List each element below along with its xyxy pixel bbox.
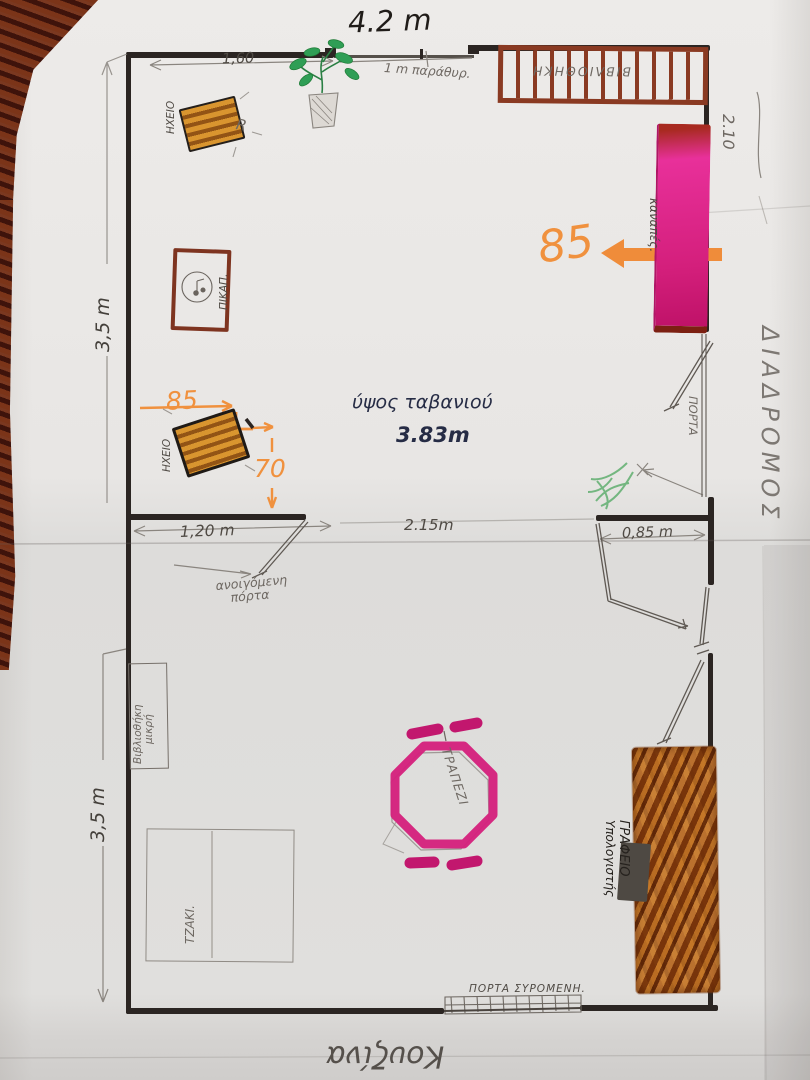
dim-right-opening: 0,85 m xyxy=(622,525,674,542)
wall-divider-left xyxy=(126,514,306,520)
wall-right-mid xyxy=(708,497,714,585)
sofa-label: καναπές. xyxy=(647,198,660,276)
fireplace xyxy=(145,828,294,962)
pencil-mark xyxy=(246,419,253,428)
dim-speaker-width: 85 xyxy=(165,387,198,415)
speaker-left-label: ΗΧΕΙΟ xyxy=(162,428,173,472)
window-jamb-left xyxy=(325,48,336,57)
kitchen-label: Κουζίνα xyxy=(300,1040,470,1072)
door-mid-label-line2: πόρτα xyxy=(230,586,289,604)
window-icon xyxy=(334,55,474,58)
bookshelf-small-label: Βιβλιοθήκη μικρή xyxy=(133,668,155,764)
dim-wall-left-segment: 1,60 xyxy=(222,51,255,67)
dim-sofa-depth: 85 xyxy=(535,218,597,272)
table-label: ΤΡΑΠΕΖΙ xyxy=(440,746,480,836)
sliding-door-label: ΠΟΡΤΑ ΣΥΡΟΜΕΝΗ. xyxy=(469,984,586,995)
dim-room-height-upper: 3,5 m xyxy=(94,268,114,352)
dim-middle-opening: 2.15m xyxy=(404,517,454,533)
wall-bottom-left xyxy=(126,1008,444,1014)
desk-label-line2: Υπολογιστής xyxy=(604,820,617,932)
ceiling-height-label: ύψος ταβανιού xyxy=(352,393,493,413)
corridor-label: ΔΙΑΔΡΟΜΟΣ xyxy=(757,326,782,556)
table-octagon xyxy=(383,723,493,865)
sofa xyxy=(653,124,711,334)
window-jamb-right xyxy=(468,45,479,54)
carpet-edge-top-left xyxy=(0,0,98,205)
sliding-door-track xyxy=(444,1008,581,1011)
dim-room-height-lower: 3,5 m xyxy=(89,766,109,842)
desk-label-line1: ΓΡΑΦΕΙΟ xyxy=(616,820,630,932)
bookshelf-top-label: ΒΙΒΛΙΟΘΗΚΗ xyxy=(531,64,631,78)
dim-top-width: 4.2 m xyxy=(347,5,432,38)
dim-right-wall-depth: 2.10 xyxy=(719,114,736,172)
dim-speaker-offset: 70 xyxy=(254,456,286,482)
speaker-top-label: ΗΧΕΙΟ xyxy=(166,94,177,134)
wall-left xyxy=(126,52,131,1014)
floor-plan-photo: ΒΙΒΛΙΟΘΗΚΗ 4.2 m 1,60 1 m παράθυρ. 2.10 … xyxy=(0,0,810,1080)
wall-bottom-right xyxy=(580,1005,718,1011)
dim-window: 1 m παράθυρ. xyxy=(384,61,472,80)
bookshelf-top: ΒΙΒΛΙΟΘΗΚΗ xyxy=(498,45,709,105)
door-mid-label: ανοιγόμενη πόρτα xyxy=(215,573,289,605)
fireplace-label: ΤΖΑΚΙ. xyxy=(184,866,197,944)
sliding-door-icon xyxy=(445,995,581,1014)
desk-label: ΓΡΑΦΕΙΟ Υπολογιστής xyxy=(604,820,630,932)
turntable-label: ΠΙΚΑΠ. xyxy=(219,264,230,310)
plant-sketch-icon xyxy=(588,463,633,509)
dim-door-opening: 1,20 m xyxy=(180,522,235,540)
bookshelf-small-line2: μικρή xyxy=(144,668,155,744)
wall-divider-right xyxy=(596,515,714,521)
speaker-left xyxy=(172,408,251,478)
r-mark: R xyxy=(234,117,247,135)
window-mullion xyxy=(420,49,423,60)
door-right-label: ΠΟΡΤΑ xyxy=(687,396,699,460)
paper-shadow-right xyxy=(764,545,810,1080)
carpet-edge-left xyxy=(0,200,16,670)
ceiling-height-value: 3.83m xyxy=(396,424,470,446)
